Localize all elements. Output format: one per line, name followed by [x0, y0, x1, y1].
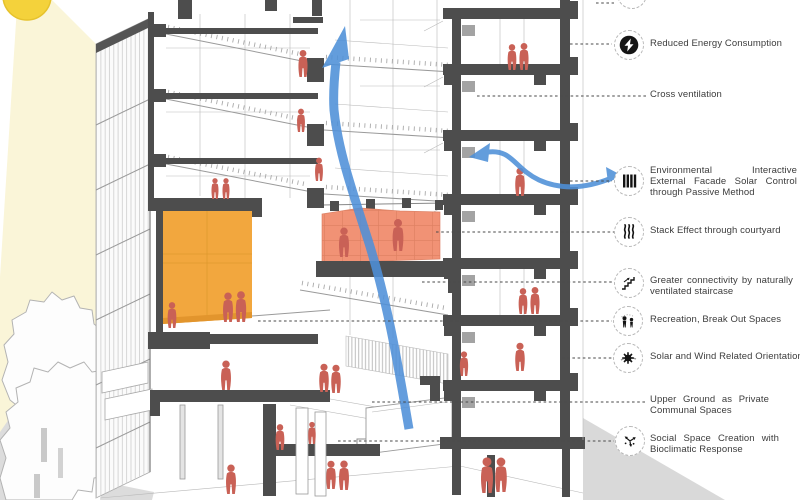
annotation-reduced-energy: Reduced Energy Consumption	[650, 39, 782, 50]
stack-effect-icon	[614, 217, 644, 247]
annotation-social-space: Social Space Creation with Bioclimatic R…	[650, 434, 779, 456]
right-bay-slabs	[440, 0, 585, 497]
building-section-illustration	[0, 0, 800, 500]
radiating-arrows-icon	[615, 426, 645, 456]
salmon-highlight-space	[316, 198, 461, 293]
annotation-solar-wind: Solar and Wind Related Orientation	[650, 352, 800, 363]
recreation-people-icon	[613, 306, 643, 336]
energy-bolt-icon	[614, 30, 644, 60]
annotation-stack-effect: Stack Effect through courtyard	[650, 226, 781, 237]
louver-facade-icon	[614, 166, 644, 196]
sun-orientation-icon	[613, 343, 643, 373]
annotation-cross-ventilation: Cross ventilation	[650, 90, 722, 101]
annotation-upper-ground: Upper Ground as Private Communal Spaces	[650, 395, 769, 417]
annotation-recreation: Recreation, Break Out Spaces	[650, 315, 781, 326]
architectural-diagram: Reduced Energy Consumption Cross ventila…	[0, 0, 800, 500]
annotation-staircase-connectivity: Greater connectivity by naturally ventil…	[650, 276, 793, 298]
airflow-arrow-facade	[488, 152, 616, 187]
left-facade	[96, 18, 150, 498]
staircase-icon	[614, 268, 644, 298]
annotation-environmental-facade: Environmental Interactive External Facad…	[650, 166, 797, 198]
